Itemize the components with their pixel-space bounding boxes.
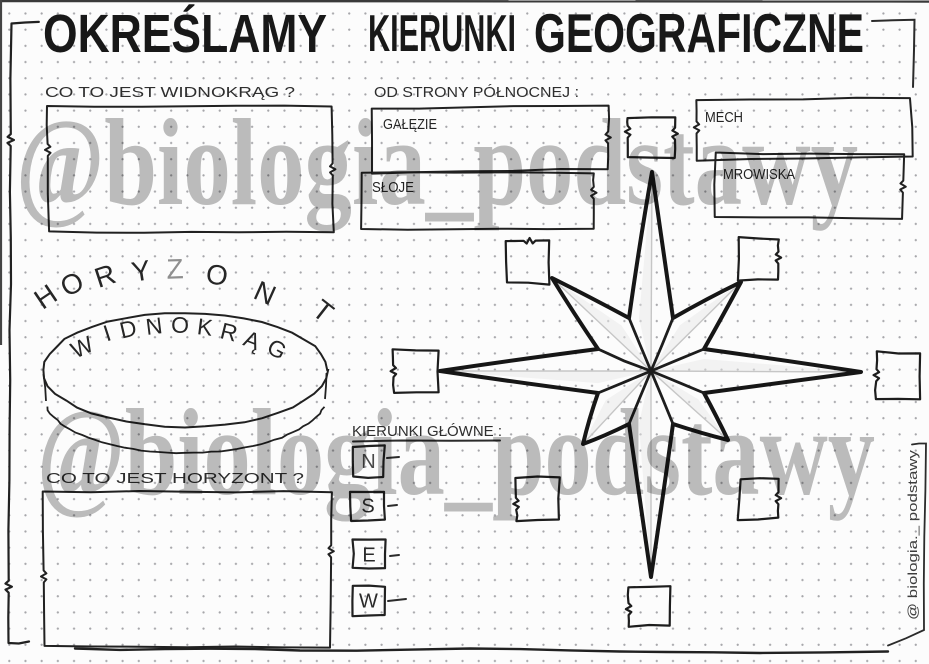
svg-text:R: R — [91, 258, 120, 294]
svg-text:O: O — [55, 265, 88, 302]
svg-text:K: K — [196, 313, 215, 341]
svg-text:@biologia_podstawy: @biologia_podstawy — [16, 94, 858, 232]
svg-text:I: I — [100, 320, 114, 347]
svg-text:O: O — [171, 312, 189, 338]
svg-text:E: E — [362, 545, 375, 567]
svg-text:@ biologia._ podstawy: @ biologia._ podstawy — [906, 449, 920, 620]
svg-text:N: N — [249, 275, 280, 312]
svg-text:KIERUNKI: KIERUNKI — [368, 5, 516, 63]
svg-text:Y: Y — [129, 254, 153, 288]
svg-text:O: O — [204, 258, 230, 292]
svg-text:W: W — [359, 591, 378, 613]
svg-text:GEOGRAFICZNE: GEOGRAFICZNE — [534, 2, 864, 64]
svg-text:Z: Z — [166, 253, 184, 285]
svg-text:D: D — [117, 314, 139, 343]
svg-text:OKREŚLAMY: OKREŚLAMY — [43, 4, 327, 64]
svg-text:G: G — [263, 333, 291, 364]
svg-text:R: R — [218, 317, 240, 346]
svg-text:N: N — [144, 312, 164, 340]
svg-text:Ą: Ą — [240, 325, 264, 355]
svg-text:H: H — [29, 278, 63, 315]
svg-text:T: T — [307, 294, 340, 329]
svg-text:@biologia_podstawy: @biologia_podstawy — [37, 384, 875, 522]
